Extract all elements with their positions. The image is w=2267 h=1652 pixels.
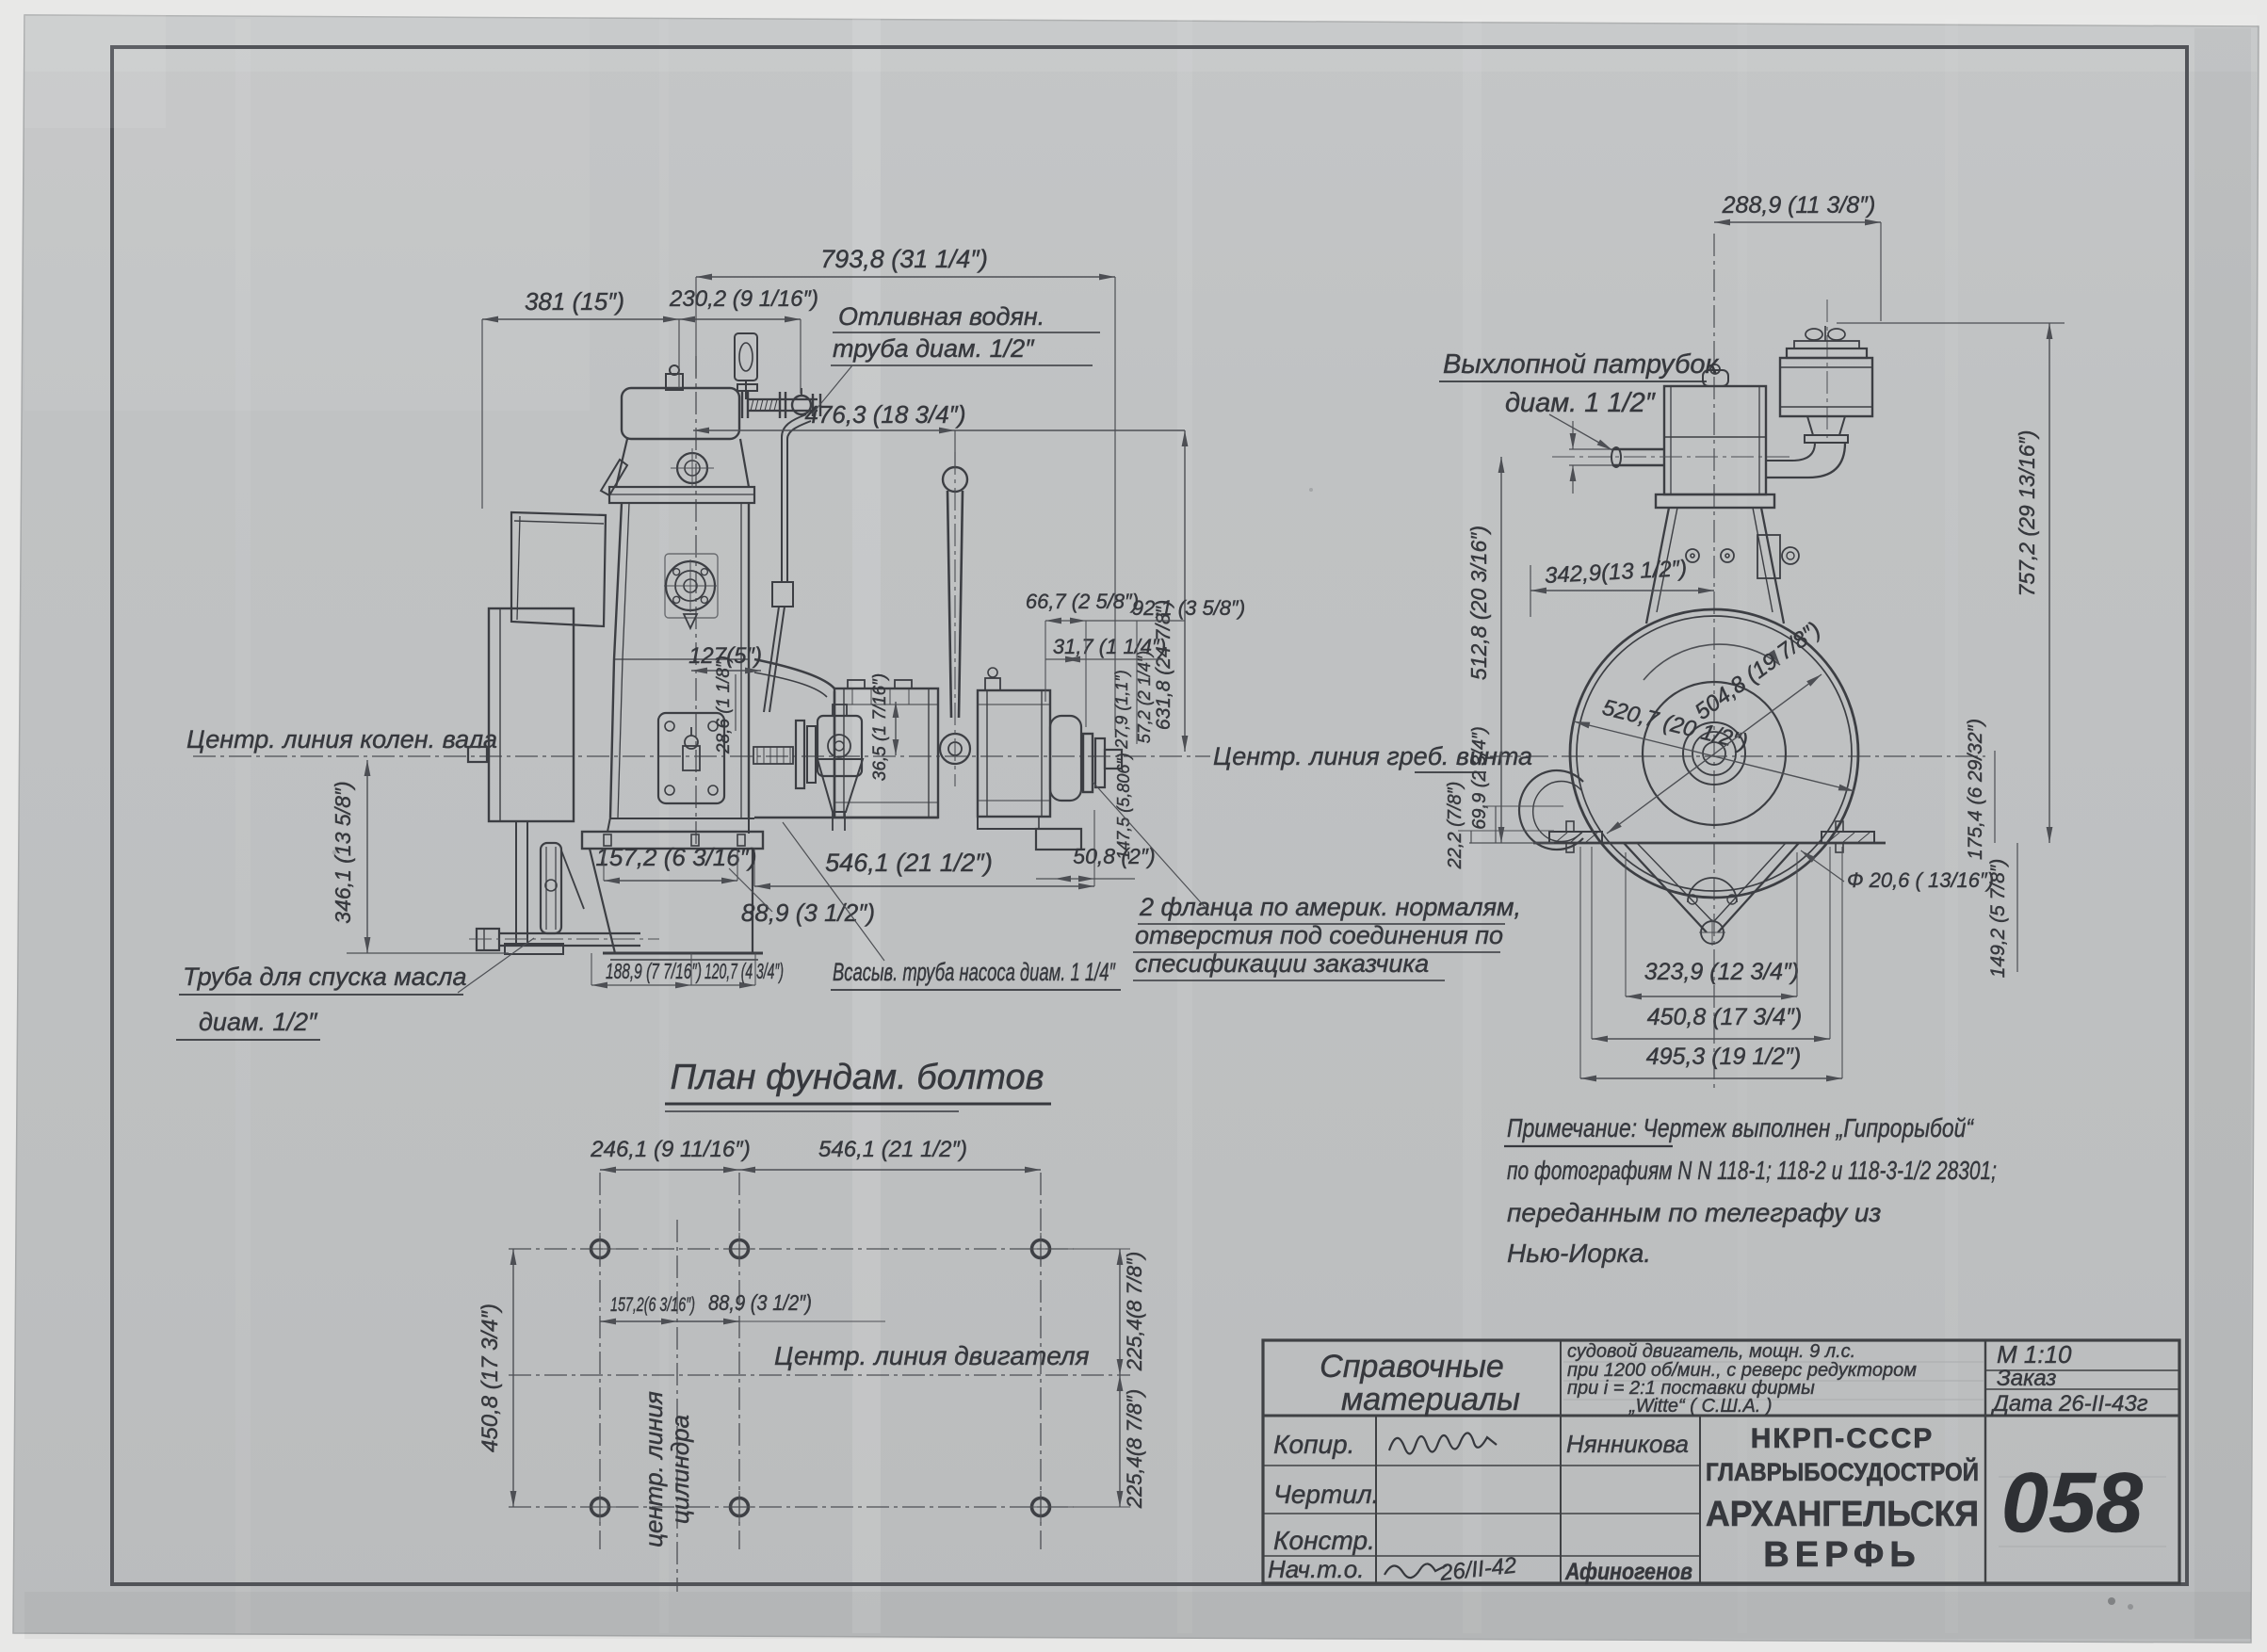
svg-text:120,7 (4 3/4″): 120,7 (4 3/4″) (704, 959, 784, 983)
svg-text:Центр. линия двигателя: Центр. линия двигателя (774, 1341, 1090, 1370)
svg-text:381 (15″): 381 (15″) (525, 287, 624, 316)
svg-text:труба диам. 1/2″: труба диам. 1/2″ (833, 334, 1035, 363)
svg-text:М 1:10: М 1:10 (1997, 1340, 2072, 1369)
svg-text:по фотографиям N N 118-1; 118-: по фотографиям N N 118-1; 118-2 и 118-3-… (1507, 1156, 1997, 1185)
svg-text:Афиногенов: Афиногенов (1564, 1559, 1692, 1585)
svg-text:476,3 (18 3/4″): 476,3 (18 3/4″) (804, 400, 965, 429)
svg-text:88,9 (3 1/2″): 88,9 (3 1/2″) (708, 1290, 812, 1315)
svg-text:230,2 (9 1/16″): 230,2 (9 1/16″) (669, 286, 818, 312)
svg-text:Выхлопной патрубок: Выхлопной патрубок (1443, 349, 1720, 380)
svg-text:157,2(6 3/16″): 157,2(6 3/16″) (610, 1294, 695, 1316)
svg-text:Примечание: Чертеж выполнен „: Примечание: Чертеж выполнен „Гипрорыбой“ (1507, 1113, 1974, 1142)
svg-text:36,5 (1 7/16″): 36,5 (1 7/16″) (870, 673, 890, 781)
svg-text:АРХАНГЕЛЬСКЯ: АРХАНГЕЛЬСКЯ (1706, 1495, 1979, 1534)
svg-text:450,8 (17 3/4″): 450,8 (17 3/4″) (478, 1304, 503, 1452)
svg-text:Нянникова: Нянникова (1566, 1430, 1689, 1458)
svg-text:323,9 (12 3/4″): 323,9 (12 3/4″) (1644, 959, 1800, 985)
svg-text:Дата 26-II-43г: Дата 26-II-43г (1990, 1391, 2148, 1417)
svg-text:диам. 1 1/2″: диам. 1 1/2″ (1505, 388, 1657, 418)
svg-text:50,8 (2″): 50,8 (2″) (1073, 844, 1155, 868)
svg-text:57,2 (2 1/4″): 57,2 (2 1/4″) (1135, 651, 1154, 743)
svg-text:495,3 (19 1/2″): 495,3 (19 1/2″) (1646, 1044, 1802, 1070)
svg-text:Ф 20,6 ( 13/16″): Ф 20,6 ( 13/16″) (1847, 868, 1994, 892)
svg-text:Копир.: Копир. (1273, 1430, 1354, 1459)
svg-text:ВЕРФЬ: ВЕРФЬ (1763, 1535, 1920, 1575)
svg-text:27,9 (1,1″): 27,9 (1,1″) (1112, 670, 1131, 749)
svg-text:66,7 (2 5/8″): 66,7 (2 5/8″) (1026, 590, 1139, 613)
svg-text:88,9 (3 1/2″): 88,9 (3 1/2″) (741, 899, 875, 927)
svg-text:28,6 (1 1/8″): 28,6 (1 1/8″) (714, 656, 734, 754)
svg-text:Констр.: Констр. (1273, 1526, 1375, 1555)
svg-text:отверстия под соединения по: отверстия под соединения по (1135, 921, 1503, 949)
svg-text:246,1 (9 11/16″): 246,1 (9 11/16″) (590, 1137, 751, 1162)
svg-text:546,1 (21 1/2″): 546,1 (21 1/2″) (825, 849, 993, 877)
svg-text:175,4 (6 29/32″): 175,4 (6 29/32″) (1965, 719, 1986, 860)
svg-text:22,2 (7/8″): 22,2 (7/8″) (1445, 782, 1465, 870)
svg-text:План фундам. болтов: План фундам. болтов (671, 1058, 1044, 1097)
svg-text:450,8 (17 3/4″): 450,8 (17 3/4″) (1647, 1004, 1803, 1030)
svg-text:793,8 (31 1/4″): 793,8 (31 1/4″) (820, 245, 988, 273)
svg-text:центр. линия: центр. линия (640, 1391, 668, 1547)
svg-text:225,4(8 7/8″): 225,4(8 7/8″) (1123, 1389, 1146, 1509)
svg-text:188,9 (7 7/16″): 188,9 (7 7/16″) (606, 959, 702, 983)
svg-text:Труба для спуска масла: Труба для спуска масла (183, 963, 466, 991)
svg-text:НКРП-СССР: НКРП-СССР (1751, 1423, 1935, 1454)
svg-text:материалы: материалы (1341, 1382, 1520, 1417)
svg-text:„Witte“ ( С.Ш.А. ): „Witte“ ( С.Ш.А. ) (1628, 1396, 1773, 1417)
svg-text:288,9 (11 3/8″): 288,9 (11 3/8″) (1722, 192, 1876, 219)
svg-text:546,1 (21 1/2″): 546,1 (21 1/2″) (818, 1137, 967, 1162)
svg-text:Всасыв. труба насоса диам. 1 1: Всасыв. труба насоса диам. 1 1/4″ (833, 958, 1116, 986)
svg-text:69,9 (2 3/4″): 69,9 (2 3/4″) (1469, 726, 1490, 829)
svg-text:92,1 (3 5/8″): 92,1 (3 5/8″) (1132, 596, 1245, 620)
svg-text:Справочные: Справочные (1320, 1349, 1504, 1385)
svg-text:Нью-Иорка.: Нью-Иорка. (1507, 1239, 1651, 1268)
svg-text:диам. 1/2″: диам. 1/2″ (199, 1008, 318, 1036)
svg-text:судовой двигатель, мощн. 9 л.с: судовой двигатель, мощн. 9 л.с. (1567, 1341, 1855, 1362)
svg-text:757,2 (29 13/16″): 757,2 (29 13/16″) (2015, 430, 2039, 597)
svg-text:157,2 (6 3/16″): 157,2 (6 3/16″) (595, 843, 756, 871)
svg-text:ГЛАВРЫБОСУДОСТРОЙ: ГЛАВРЫБОСУДОСТРОЙ (1706, 1457, 1979, 1486)
svg-text:Чертил.: Чертил. (1273, 1480, 1379, 1509)
svg-text:Нач.т.о.: Нач.т.о. (1268, 1555, 1364, 1583)
svg-text:Отливная водян.: Отливная водян. (838, 302, 1044, 331)
svg-text:спесификации заказчика: спесификации заказчика (1135, 949, 1429, 978)
svg-text:переданным по телеграфу из: переданным по телеграфу из (1507, 1198, 1881, 1227)
svg-text:цилиндра: цилиндра (666, 1415, 694, 1524)
svg-text:Центр. линия колен. вала: Центр. линия колен. вала (186, 725, 497, 753)
svg-text:225,4(8 7/8″): 225,4(8 7/8″) (1123, 1252, 1146, 1371)
svg-text:512,8 (20 3/16″): 512,8 (20 3/16″) (1466, 526, 1491, 680)
svg-text:Заказ: Заказ (1997, 1366, 2056, 1391)
svg-text:149,2 (5 7/8″): 149,2 (5 7/8″) (1987, 859, 2009, 979)
svg-text:058: 058 (2001, 1456, 2143, 1550)
